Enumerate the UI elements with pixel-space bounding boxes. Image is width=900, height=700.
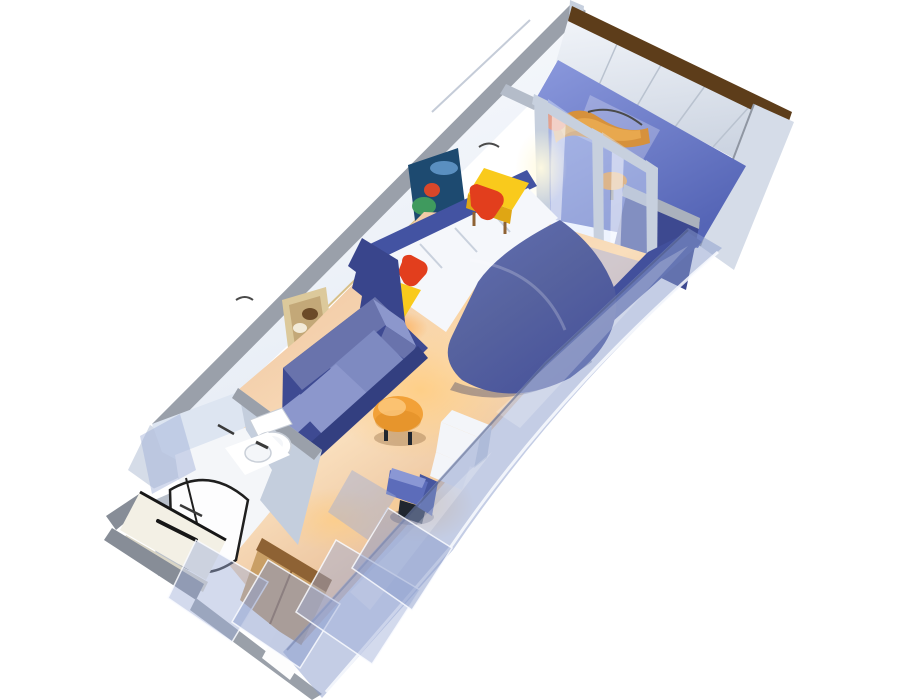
floorplan-stage <box>0 0 900 700</box>
ottoman-shadow <box>374 430 426 446</box>
etching-dark-mark <box>302 308 318 320</box>
ottoman-highlight <box>378 398 406 416</box>
stateroom-floorplan <box>0 0 900 700</box>
ottoman-table <box>373 396 426 446</box>
reef-red-fish <box>424 183 440 197</box>
etching-light-mark <box>293 323 307 333</box>
reef-blue-streak <box>430 161 458 175</box>
